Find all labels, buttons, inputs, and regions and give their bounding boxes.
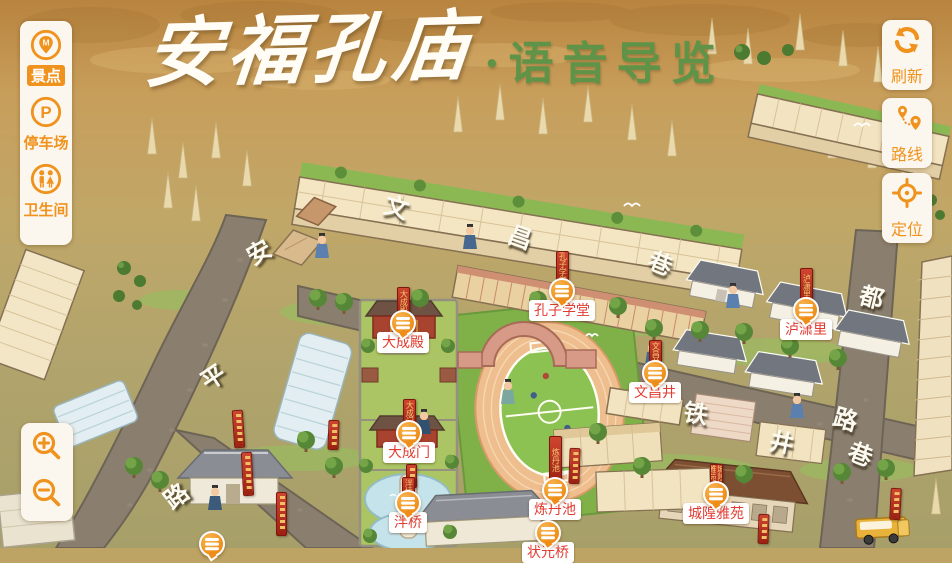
audio-marker-icon[interactable] <box>390 310 416 336</box>
toolbar-label-scenic: 景点 <box>27 65 65 86</box>
poi-luxiaoli: 泸潇里 泸潇里 <box>780 268 832 340</box>
poi-zhuangyuanqiao: 状元桥 <box>522 520 574 563</box>
decorative-banner <box>276 492 287 536</box>
audio-marker-icon[interactable] <box>396 420 422 446</box>
locate-label: 定位 <box>891 216 923 240</box>
svg-text:P: P <box>40 103 51 122</box>
toolbar-item-restroom[interactable]: 卫生间 <box>23 162 68 220</box>
poi-wenchangjing: 文昌井 文昌井 <box>629 340 681 403</box>
zoom-out-icon <box>29 475 65 516</box>
svg-text:M: M <box>42 37 49 47</box>
parking-icon: P <box>29 95 63 129</box>
decorative-banner <box>889 488 902 521</box>
scenic-marker-icon: M <box>29 28 63 62</box>
restroom-icon <box>29 162 63 196</box>
audio-marker-icon[interactable] <box>542 477 568 503</box>
route-icon <box>890 101 924 140</box>
zoom-toolbar <box>21 423 73 521</box>
zoom-in-icon <box>29 428 65 469</box>
audio-marker-icon[interactable] <box>793 297 819 323</box>
audio-marker-icon[interactable] <box>549 278 575 304</box>
poi-chenghuangyayuan: 城隍雅苑 城隍雅苑 <box>683 464 749 524</box>
locate-icon <box>890 176 924 215</box>
decorative-banner <box>241 452 254 497</box>
decorative-banner <box>757 514 769 544</box>
poi-dachengmen: 大成门 大成门 <box>383 399 435 463</box>
poi-panqiao: 泮桥 泮桥 <box>389 477 427 533</box>
toolbar-label-restroom: 卫生间 <box>23 199 68 220</box>
poi-audio-marker-bottom-left <box>199 531 225 557</box>
toolbar-item-parking[interactable]: P 停车场 <box>23 95 68 153</box>
audio-marker-icon[interactable] <box>703 481 729 507</box>
poi-kongzixuetang: 孔子学堂 孔子学堂 <box>529 251 595 321</box>
route-label: 路线 <box>891 141 923 165</box>
refresh-label: 刷新 <box>891 63 923 87</box>
toolbar-label-parking: 停车场 <box>23 132 68 153</box>
refresh-icon <box>890 23 924 62</box>
left-toolbar: M 景点 P 停车场 <box>20 21 72 245</box>
poi-dachengdian: 大成殿 大成殿 <box>377 287 429 353</box>
zoom-in-button[interactable] <box>29 428 65 469</box>
route-button[interactable]: 路线 <box>882 98 932 168</box>
zoom-out-button[interactable] <box>29 475 65 516</box>
audio-marker-icon[interactable] <box>395 490 421 516</box>
locate-button[interactable]: 定位 <box>882 173 932 243</box>
poi-liandanchi: 炼丹池 炼丹池 <box>529 436 581 520</box>
map-stage: 安 平 路 文 昌 巷 都 路 铁 井 巷 大成殿 大成殿 孔子学堂 孔子学堂 … <box>0 0 952 548</box>
audio-marker-icon[interactable] <box>642 360 668 386</box>
refresh-button[interactable]: 刷新 <box>882 20 932 90</box>
audio-marker-icon[interactable] <box>535 520 561 546</box>
toolbar-item-scenic[interactable]: M 景点 <box>27 28 65 86</box>
audio-marker-icon[interactable] <box>199 531 225 557</box>
decorative-banner <box>327 420 339 450</box>
